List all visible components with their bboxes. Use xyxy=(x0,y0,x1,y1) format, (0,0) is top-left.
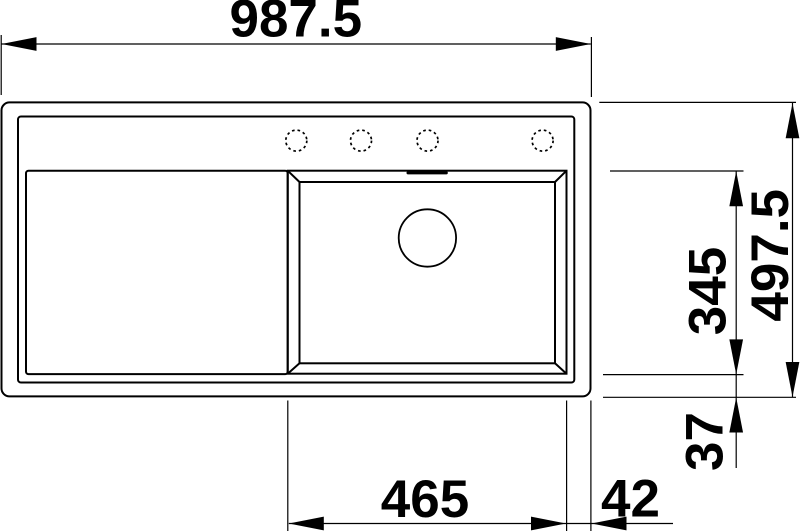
svg-text:497.5: 497.5 xyxy=(741,189,800,322)
svg-text:42: 42 xyxy=(601,470,660,529)
svg-text:345: 345 xyxy=(679,247,738,335)
svg-text:37: 37 xyxy=(676,412,735,471)
svg-text:987.5: 987.5 xyxy=(229,0,362,49)
svg-text:465: 465 xyxy=(381,470,469,529)
